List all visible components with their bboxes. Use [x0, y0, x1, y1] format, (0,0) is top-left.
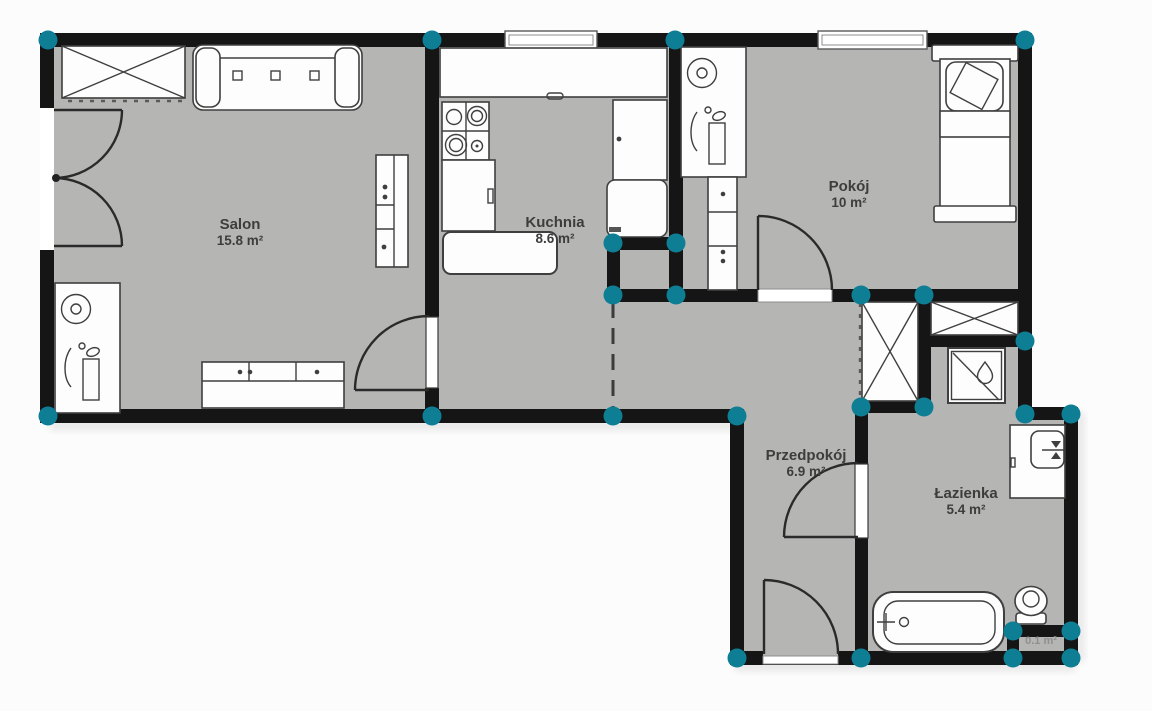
corner-marker[interactable]: [667, 234, 686, 253]
room-name-label: Przedpokój: [766, 447, 847, 464]
desk-workstation: [681, 47, 746, 177]
wall-segment: [40, 409, 744, 423]
wall-segment: [918, 289, 931, 413]
corner-marker[interactable]: [915, 398, 934, 417]
wardrobe: [62, 46, 185, 98]
cabinet: [708, 177, 737, 290]
corner-marker[interactable]: [1004, 622, 1023, 641]
room-area-label: 6.9 m²: [786, 464, 826, 479]
sink-icon: [1010, 425, 1065, 498]
corner-marker[interactable]: [1016, 31, 1035, 50]
tall-cabinet: [613, 100, 667, 180]
corner-marker[interactable]: [1062, 405, 1081, 424]
stove-icon: [442, 102, 489, 160]
entrance-sill: [763, 656, 838, 664]
window: [505, 31, 597, 49]
door-leaf-closed: [855, 464, 868, 538]
window: [818, 31, 927, 49]
corner-marker[interactable]: [1004, 649, 1023, 668]
corner-marker[interactable]: [423, 31, 442, 50]
wall-segment: [40, 250, 54, 423]
corner-marker[interactable]: [915, 286, 934, 305]
corner-marker[interactable]: [423, 407, 442, 426]
corner-marker[interactable]: [728, 407, 747, 426]
door-leaf-closed: [426, 317, 438, 388]
sofa: [193, 45, 362, 110]
room-area-label: 8.6 m²: [535, 231, 575, 246]
corner-marker[interactable]: [604, 286, 623, 305]
toilet-icon: [1015, 587, 1047, 625]
fridge: [607, 180, 667, 237]
corner-marker[interactable]: [852, 649, 871, 668]
corner-marker[interactable]: [852, 398, 871, 417]
corner-marker[interactable]: [728, 649, 747, 668]
wall-segment: [855, 538, 868, 651]
room-area-label: 0.1 m²: [1025, 635, 1057, 647]
wall-segment: [425, 47, 439, 317]
corner-marker[interactable]: [39, 407, 58, 426]
room-name-label: Pokój: [829, 178, 870, 195]
room-area-label: 5.4 m²: [946, 502, 986, 517]
corner-marker[interactable]: [1062, 649, 1081, 668]
wall-segment: [730, 409, 744, 665]
base-cabinet: [442, 160, 495, 231]
desk-workstation: [55, 283, 120, 413]
door-threshold: [758, 289, 832, 302]
corner-marker[interactable]: [666, 31, 685, 50]
cabinet: [376, 155, 408, 267]
corner-marker[interactable]: [1016, 405, 1035, 424]
corner-marker[interactable]: [604, 234, 623, 253]
kitchen-counter: [440, 48, 667, 99]
bathtub-icon: [873, 592, 1004, 652]
room-area-label: 10 m²: [831, 195, 867, 210]
floor-plan-canvas: Salon 15.8 m² Kuchnia 8.6 m² Pokój 10 m²…: [0, 0, 1152, 711]
room-name-label: Kuchnia: [525, 214, 585, 231]
room-area-label: 15.8 m²: [217, 233, 264, 248]
bed: [932, 45, 1018, 222]
corner-marker[interactable]: [1062, 622, 1081, 641]
corner-marker[interactable]: [667, 286, 686, 305]
balcony-door-opening: [40, 108, 54, 250]
corner-marker[interactable]: [1016, 332, 1035, 351]
corner-marker[interactable]: [39, 31, 58, 50]
corner-marker[interactable]: [604, 407, 623, 426]
built-in-wardrobe: [862, 302, 918, 401]
washing-machine-icon: [948, 348, 1005, 403]
corner-marker[interactable]: [852, 286, 871, 305]
room-name-label: Łazienka: [934, 485, 998, 502]
wall-segment: [1018, 33, 1032, 420]
room-name-label: Salon: [220, 216, 261, 233]
sideboard: [202, 362, 344, 408]
built-in-wardrobe: [931, 302, 1018, 335]
